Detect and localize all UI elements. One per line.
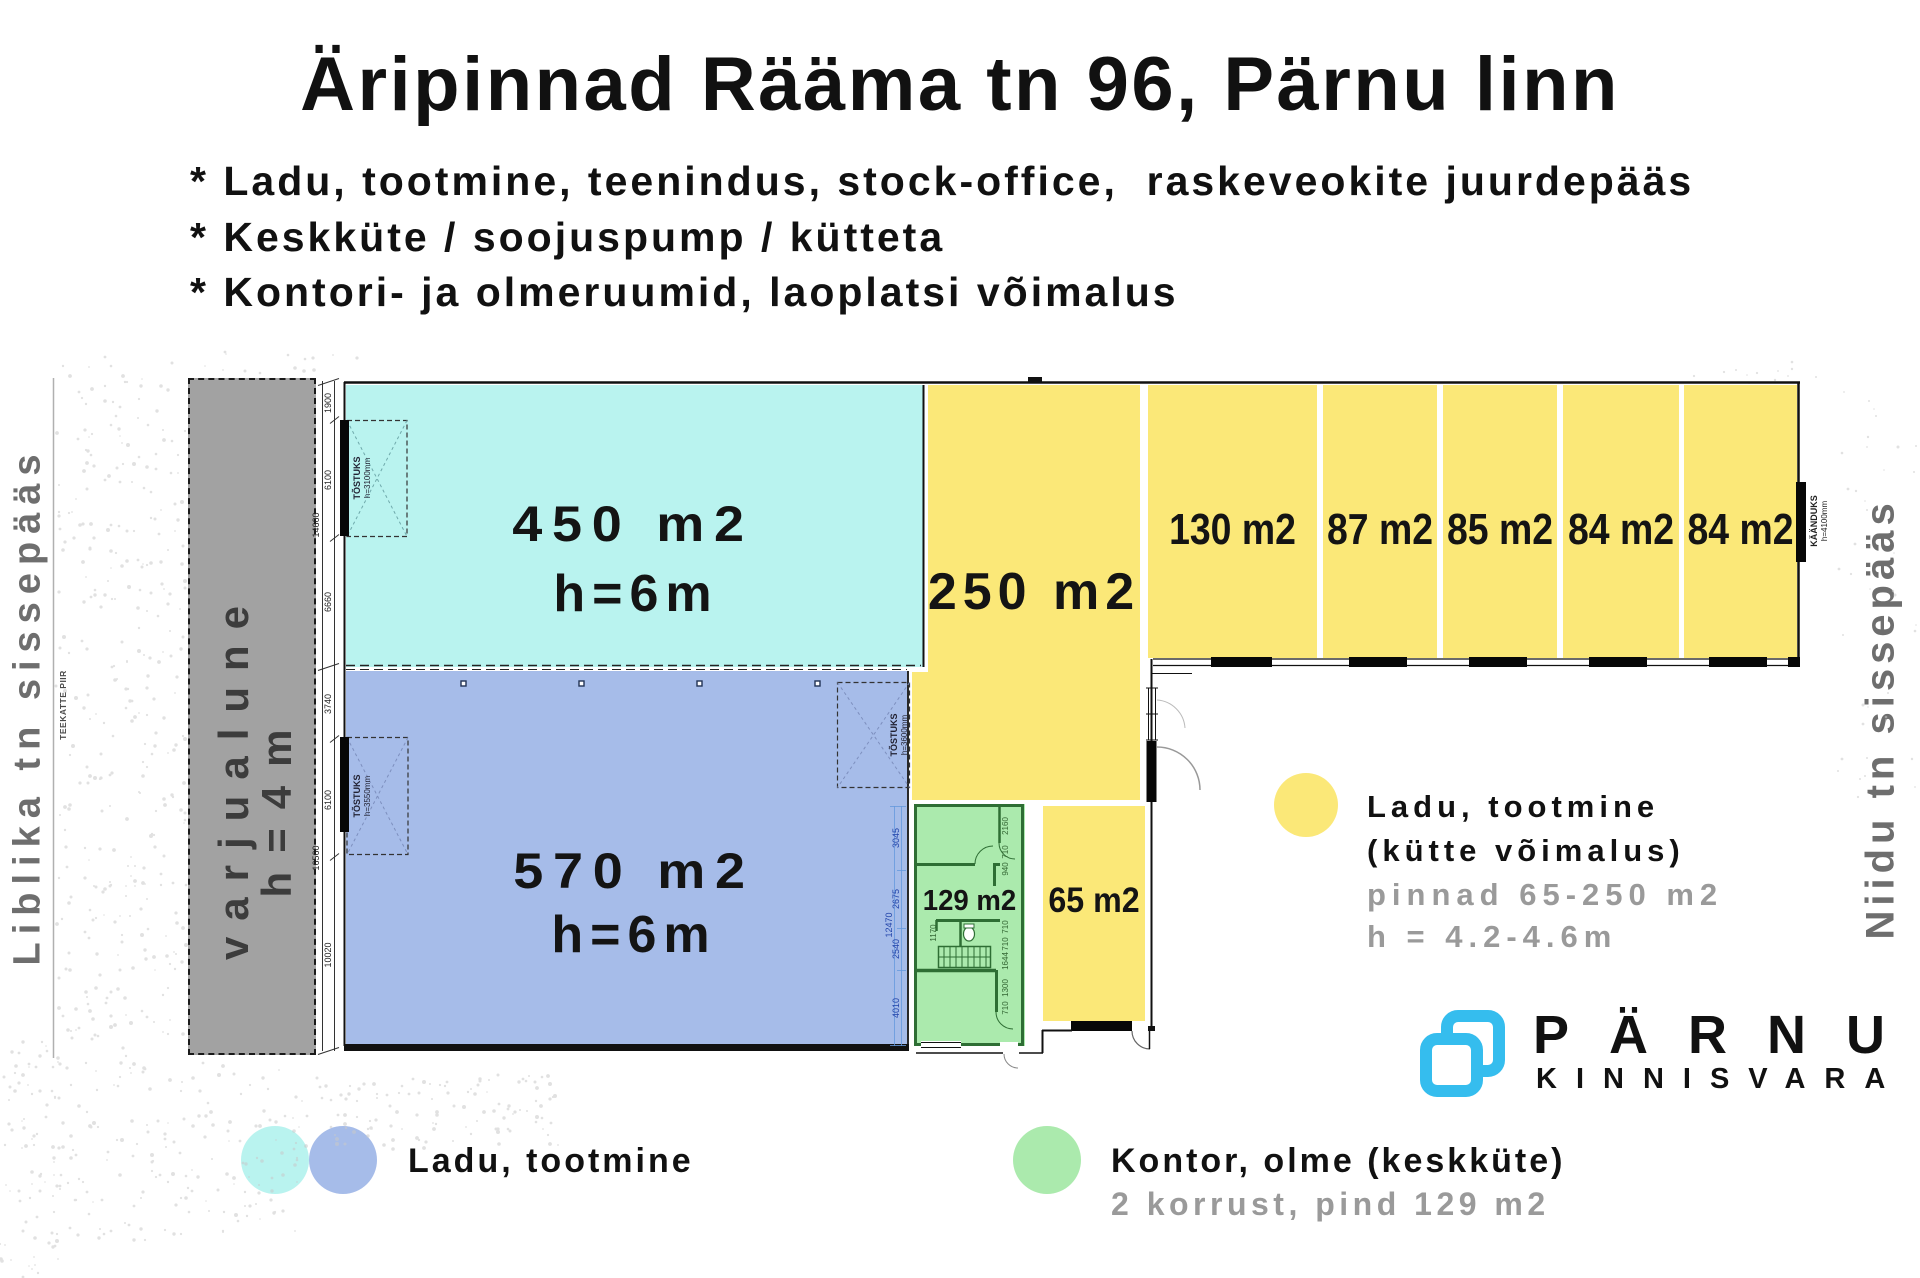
svg-text:2160: 2160 [1001,817,1010,835]
svg-text:TEEKATTE PIIR: TEEKATTE PIIR [58,670,68,740]
svg-text:16560: 16560 [311,845,321,870]
svg-text:TÕSTUKS: TÕSTUKS [889,713,899,756]
svg-text:2675: 2675 [891,889,901,909]
svg-text:2540: 2540 [891,939,901,959]
svg-text:h=3550mm: h=3550mm [363,776,372,817]
svg-text:6100: 6100 [323,790,333,810]
svg-text:940: 940 [1001,862,1010,876]
svg-text:710: 710 [1001,845,1010,859]
svg-text:1644: 1644 [1001,952,1010,970]
svg-text:TÕSTUKS: TÕSTUKS [352,456,362,499]
svg-text:KÄÄNDUKS: KÄÄNDUKS [1809,495,1819,547]
svg-text:3045: 3045 [891,828,901,848]
svg-text:710: 710 [1001,937,1010,951]
svg-text:6660: 6660 [323,592,333,612]
svg-text:4010: 4010 [891,998,901,1018]
svg-text:1170: 1170 [929,924,938,942]
svg-text:h=4100mm: h=4100mm [1820,501,1829,542]
svg-text:3740: 3740 [323,694,333,714]
svg-text:h=3100mm: h=3100mm [363,458,372,499]
svg-text:1900: 1900 [323,393,333,413]
svg-text:710: 710 [1001,1001,1010,1015]
svg-text:h=3600mm: h=3600mm [900,715,909,756]
svg-text:TÕSTUKS: TÕSTUKS [352,774,362,817]
svg-text:1300: 1300 [1001,979,1010,997]
svg-text:12470: 12470 [884,912,894,937]
svg-text:6100: 6100 [323,470,333,490]
svg-text:14660: 14660 [311,512,321,537]
svg-text:10020: 10020 [323,942,333,967]
svg-text:710: 710 [1001,920,1010,934]
